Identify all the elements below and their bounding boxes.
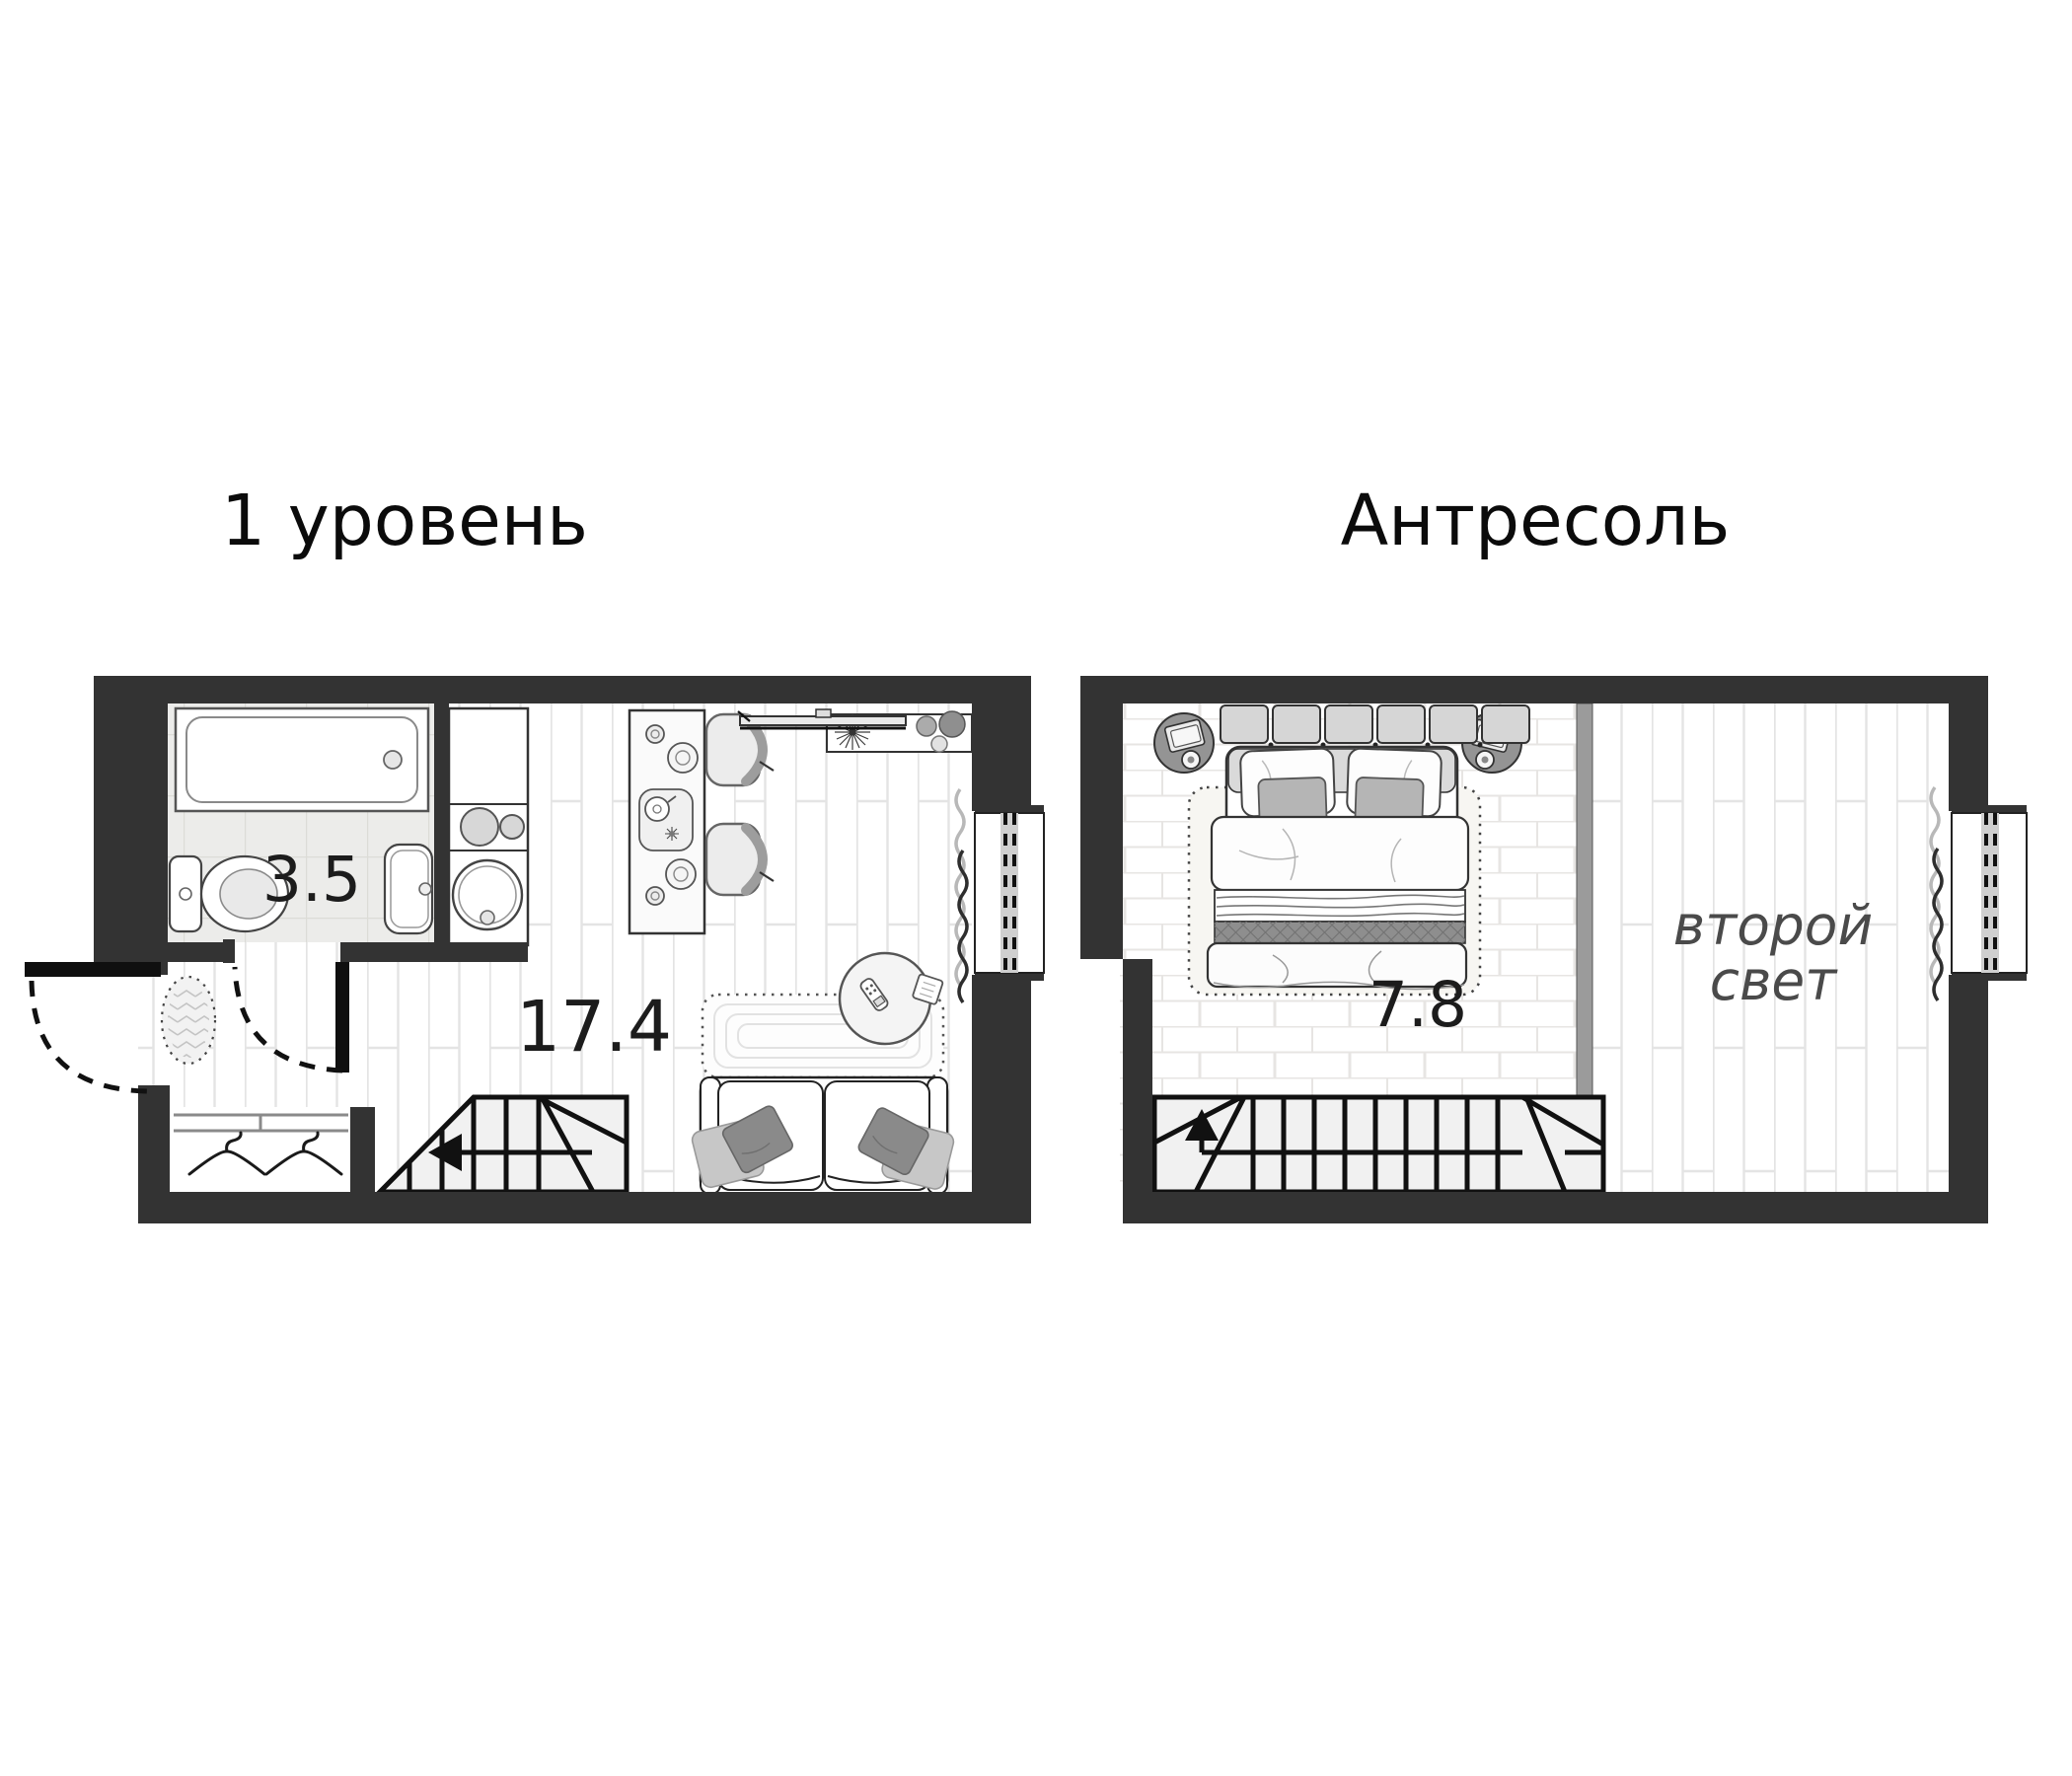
wardrobe <box>170 1107 350 1192</box>
washbasin <box>385 845 432 933</box>
floorplan-canvas: 1 уровень <box>0 0 2072 1776</box>
plan-mezzanine: Антресоль <box>1080 480 2027 1223</box>
area-label-bathroom: 3.5 <box>262 844 361 916</box>
nightstand <box>1154 713 1214 773</box>
window <box>1952 813 2027 973</box>
floorplan-svg: 1 уровень <box>0 0 2072 1776</box>
tray <box>639 789 693 851</box>
decor-bowl <box>939 711 965 737</box>
sofa <box>691 1077 956 1194</box>
plan1-title: 1 уровень <box>221 480 588 561</box>
void-label-line1: второй <box>1673 894 1873 957</box>
duvet <box>1212 817 1468 890</box>
glass-divider <box>1577 703 1592 1097</box>
bar-island <box>629 710 704 933</box>
area-label-living: 17.4 <box>516 986 672 1068</box>
cooktop-burner <box>500 815 524 839</box>
teapot <box>645 797 669 821</box>
stairs-mezzanine <box>1154 1097 1603 1192</box>
bathtub <box>176 708 428 811</box>
double-bed <box>1208 747 1468 990</box>
decor-bowl <box>917 716 936 736</box>
plan2-title: Антресоль <box>1341 480 1731 561</box>
plan-level1: 1 уровень <box>25 480 1044 1223</box>
decor-bowl <box>931 736 947 752</box>
door-swing-arc <box>32 981 148 1091</box>
window <box>975 813 1044 973</box>
doormat <box>162 977 215 1064</box>
kitchen-block <box>449 708 528 945</box>
area-label-bedroom: 7.8 <box>1369 969 1467 1041</box>
void-label-line2: свет <box>1710 949 1838 1012</box>
cooktop-burner <box>461 808 498 846</box>
flowers <box>665 827 679 841</box>
